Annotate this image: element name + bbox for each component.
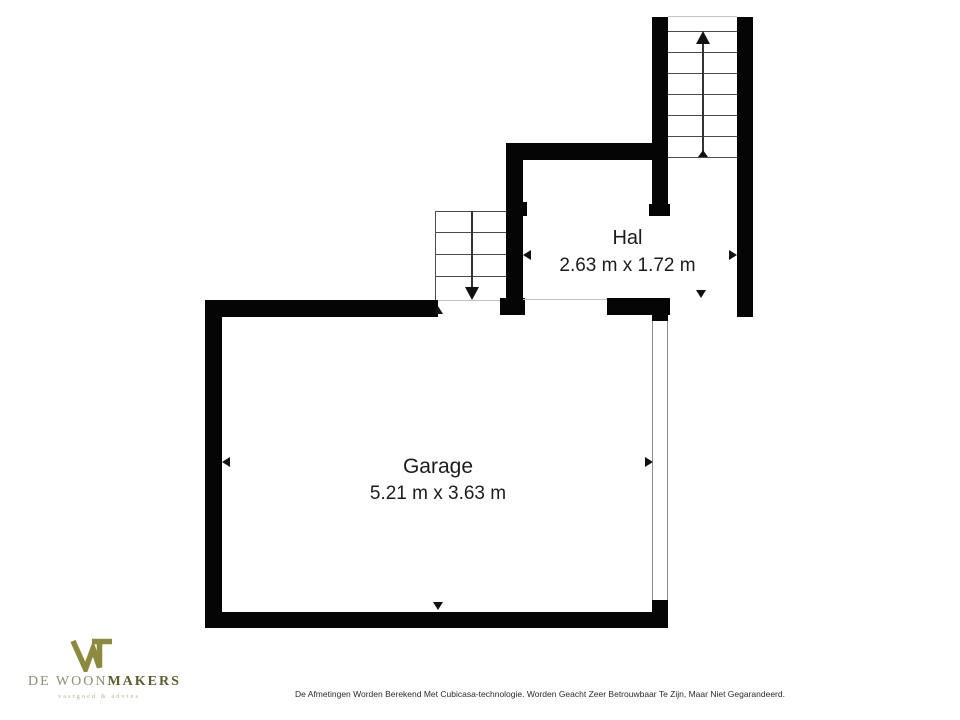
dimension-arrow-up-icon: [433, 306, 443, 314]
logo-brand-prefix: DE WOON: [28, 674, 107, 689]
dimension-arrow-down-icon: [433, 602, 443, 610]
wall-garage-top: [205, 300, 438, 317]
stairs-up-arrow-icon: [696, 31, 710, 44]
stairs-arrow-base-icon: [698, 150, 708, 157]
hal-doorway-line: [523, 299, 607, 300]
wall-hal-left-foot: [500, 298, 525, 315]
wall-garage-bottom: [205, 612, 668, 628]
wall-hal-top: [506, 143, 668, 160]
room-dimensions: 5.21 m x 3.63 m: [320, 480, 556, 507]
room-dimensions: 2.63 m x 1.72 m: [510, 252, 745, 279]
stair-opening-line: [438, 300, 500, 301]
dimension-arrow-left-icon: [222, 457, 230, 467]
measurement-disclaimer: De Afmetingen Worden Berekend Met Cubica…: [120, 689, 960, 699]
wall-garage-right-bottom-stub: [652, 600, 668, 614]
woonmakers-w-mark-icon: [70, 638, 114, 672]
dimension-arrow-down-icon: [696, 290, 706, 298]
stair-top-edge-line: [668, 16, 737, 17]
room-name: Garage: [320, 453, 556, 480]
stair-tread-line: [668, 157, 737, 158]
room-label-garage: Garage 5.21 m x 3.63 m: [320, 453, 556, 507]
stair-edge-line: [435, 211, 436, 300]
wall-garage-left: [205, 300, 222, 628]
stairs-direction-line: [471, 211, 473, 288]
company-logo: DE WOONMAKERS vastgoed & advies: [0, 0, 200, 75]
stairs-down-arrow-icon: [465, 287, 479, 300]
garage-opening-outer-line: [667, 321, 668, 600]
wall-stairs-left: [652, 17, 668, 215]
logo-brand-name: DE WOONMAKERS: [28, 674, 170, 690]
wall-hal-left-jamb: [506, 202, 527, 216]
logo-brand-suffix: MAKERS: [107, 674, 180, 689]
stairs-direction-line: [702, 42, 704, 154]
wall-hal-left: [506, 143, 523, 303]
wall-stairs-left-stub: [649, 204, 670, 216]
room-label-hal: Hal 2.63 m x 1.72 m: [510, 225, 745, 279]
floorplan-page: Hal 2.63 m x 1.72 m Garage 5.21 m x 3.63…: [0, 0, 960, 720]
wall-garage-right-top-stub: [652, 300, 668, 321]
room-name: Hal: [510, 225, 745, 252]
dimension-arrow-right-icon: [645, 457, 653, 467]
